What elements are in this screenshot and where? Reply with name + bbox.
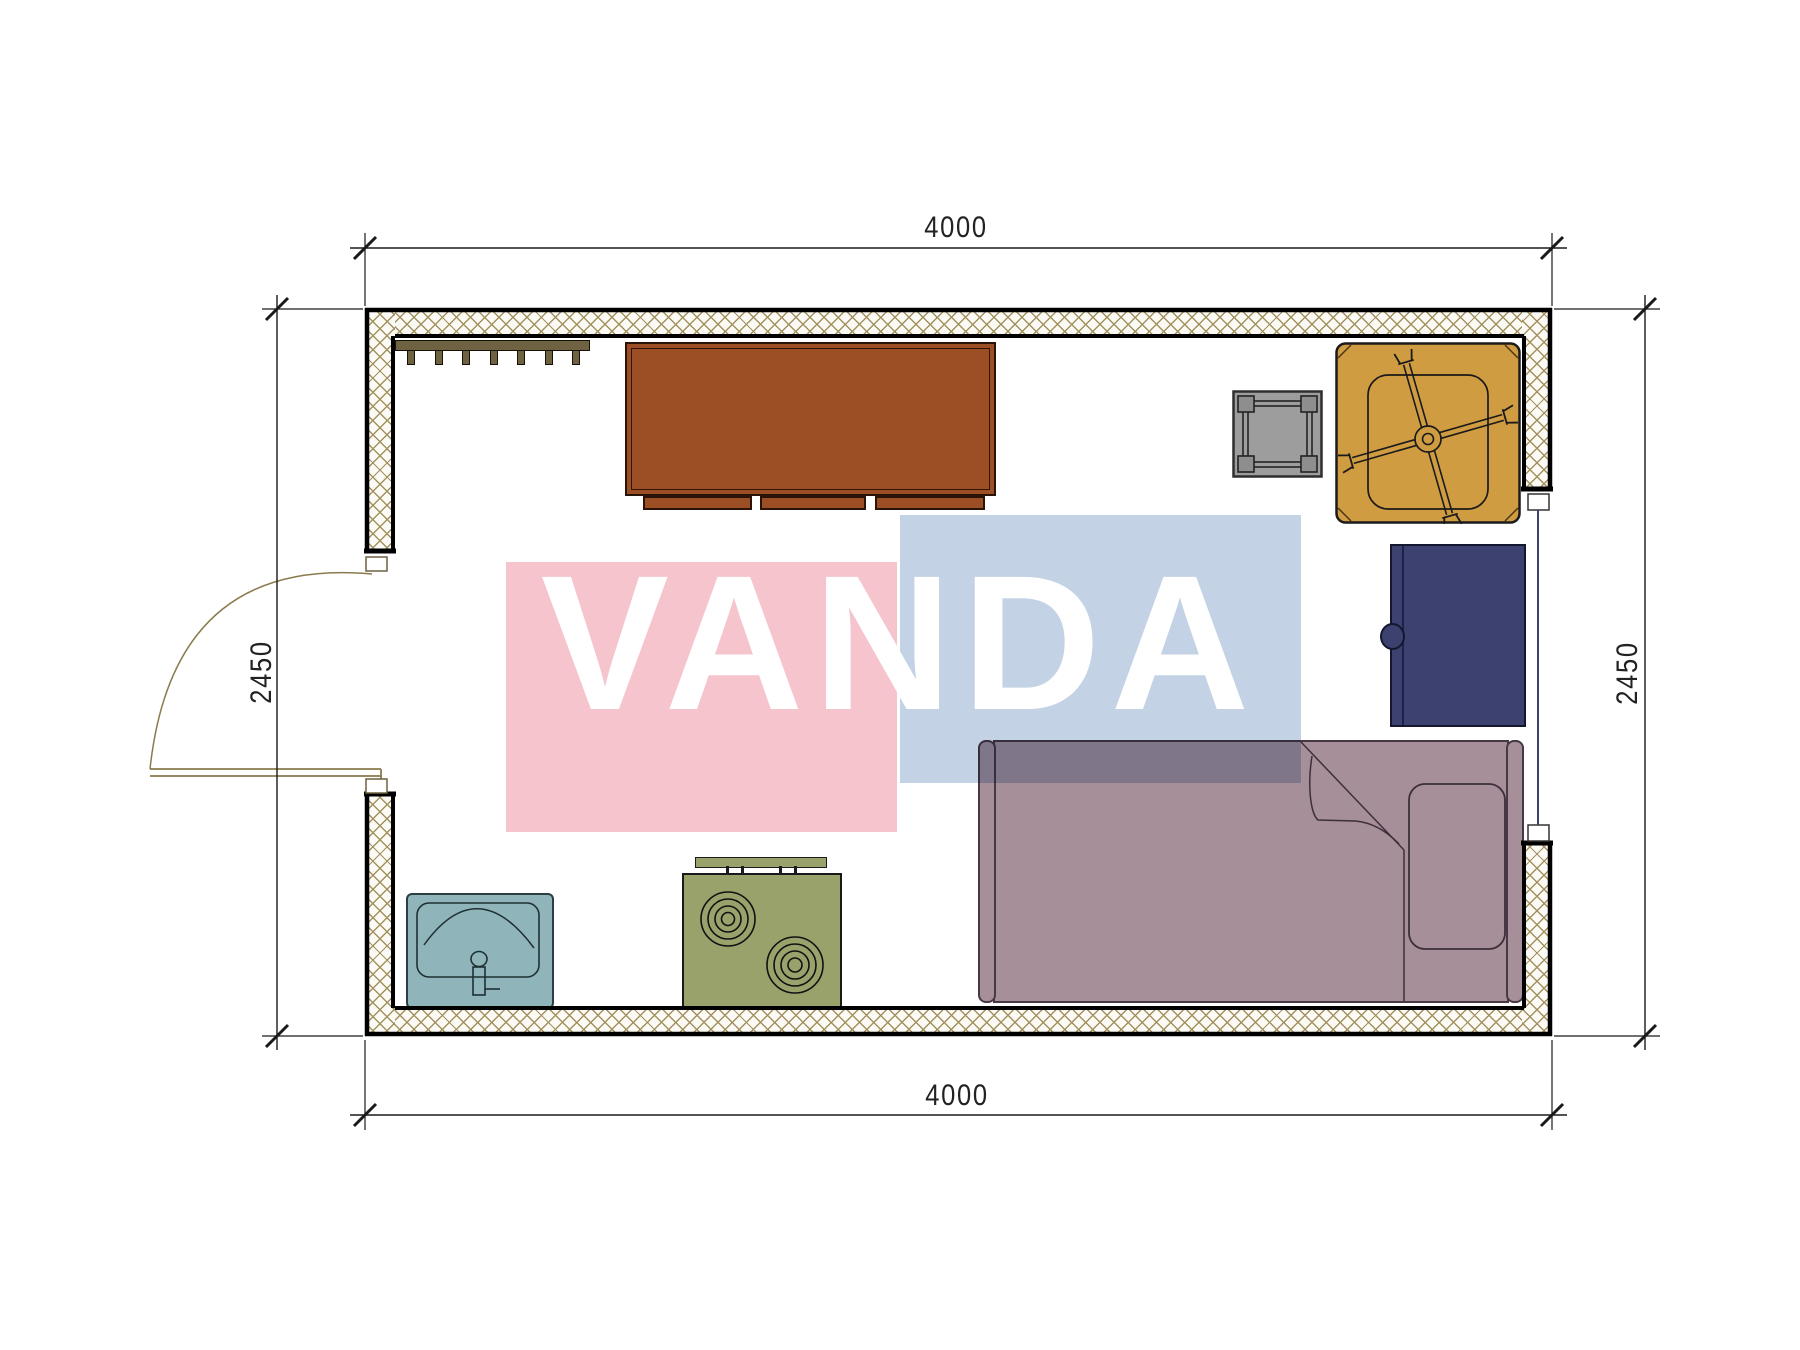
door-frame [366,557,387,571]
door-frame [366,779,387,793]
sink-symbol [406,893,554,1009]
wall-right-upper [1522,308,1552,489]
wall-left-lower [365,792,395,1036]
faucet [471,952,487,967]
desk-foot [643,496,752,510]
wall-right-lower [1522,843,1552,1036]
coat-hook [407,350,415,365]
dimension-label-top: 4000 [905,212,1007,244]
dimension-label-right: 2450 [1612,622,1644,724]
wall-left-upper [365,308,395,553]
floor-plan-canvas: VANDA [0,0,1800,1350]
desk-symbol [625,342,996,496]
stove-symbol [682,873,842,1009]
desk-foot [760,496,866,510]
nightstand-symbol [1390,544,1526,727]
nightstand-knob [1380,623,1405,650]
window-symbol [1528,494,1549,841]
coat-hook [435,350,443,365]
burner [767,937,823,993]
coat-hook [462,350,470,365]
dimension-label-bottom: 4000 [906,1080,1008,1112]
coat-hook [517,350,525,365]
stove-vent-bar [695,857,827,868]
desk-foot [875,496,985,510]
burner [701,892,755,946]
window-frame [1528,825,1549,841]
dimension-right [1554,295,1660,1050]
window-frame [1528,494,1549,510]
side-table-symbol [1232,390,1323,478]
wall-bottom [365,1006,1552,1036]
pillow [1409,784,1505,949]
coat-hook [545,350,553,365]
wall-top [365,308,1552,338]
dimension-label-left: 2450 [246,621,278,723]
coat-hook [490,350,498,365]
watermark-text: VANDA [520,548,1280,738]
office-chair-symbol [1335,342,1521,524]
coat-hook [572,350,580,365]
